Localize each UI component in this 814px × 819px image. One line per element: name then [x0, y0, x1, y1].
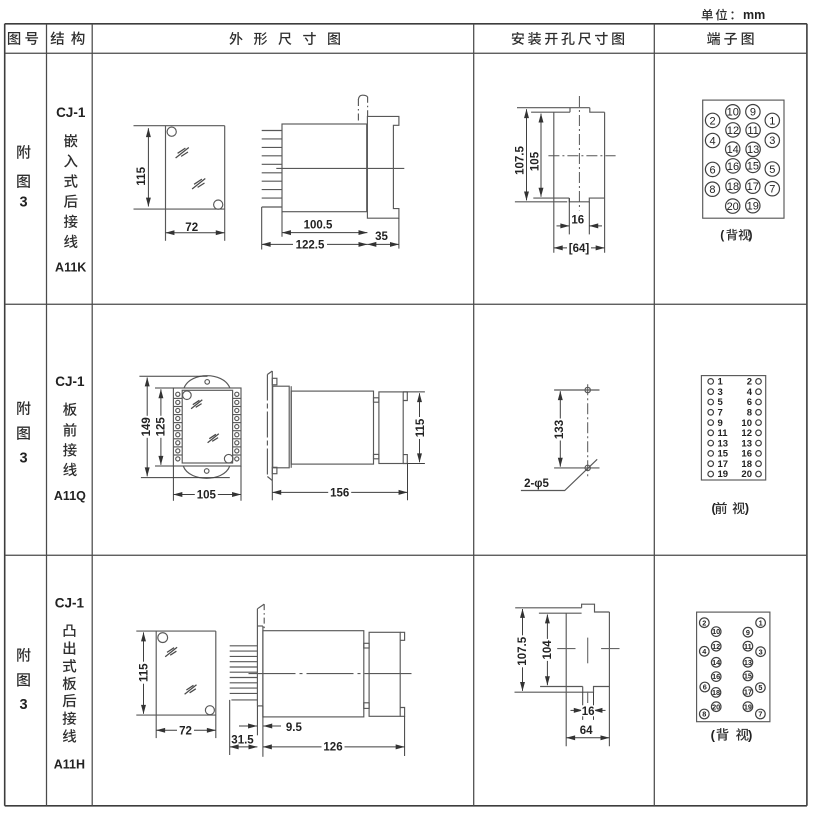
svg-text:A11K: A11K	[55, 260, 86, 274]
svg-text:mm: mm	[743, 8, 765, 22]
svg-text:100.5: 100.5	[304, 219, 333, 231]
svg-text:7: 7	[758, 710, 762, 719]
svg-text:16: 16	[712, 672, 720, 681]
svg-text:): )	[745, 502, 749, 516]
svg-text:18: 18	[727, 181, 739, 193]
svg-text:10: 10	[712, 627, 720, 636]
svg-text:14: 14	[727, 144, 739, 156]
svg-text:19: 19	[718, 469, 729, 480]
svg-text:20: 20	[727, 201, 739, 213]
svg-text:9: 9	[746, 628, 750, 637]
svg-text:105: 105	[197, 490, 217, 502]
svg-text:(: (	[711, 727, 716, 742]
svg-text:115: 115	[415, 418, 427, 437]
svg-text:15: 15	[747, 160, 759, 172]
svg-text:[64]: [64]	[569, 243, 590, 255]
svg-text:149: 149	[141, 417, 153, 436]
svg-text:6: 6	[703, 683, 707, 692]
svg-text:A11H: A11H	[54, 757, 85, 771]
svg-text:72: 72	[179, 725, 192, 737]
svg-text:11: 11	[744, 642, 752, 651]
svg-text:125: 125	[155, 417, 167, 437]
svg-text:31.5: 31.5	[231, 734, 254, 746]
svg-text:9: 9	[750, 107, 756, 119]
svg-text:17: 17	[747, 181, 759, 193]
svg-text:20: 20	[712, 702, 720, 711]
svg-text:): )	[748, 727, 752, 742]
svg-text:CJ-1: CJ-1	[56, 105, 86, 120]
svg-text:(: (	[720, 228, 724, 242]
svg-text:115: 115	[136, 166, 148, 185]
svg-text:CJ-1: CJ-1	[55, 596, 85, 611]
svg-text:13: 13	[747, 144, 759, 156]
svg-text:104: 104	[542, 640, 554, 660]
svg-text:16: 16	[571, 215, 584, 227]
svg-text:2-φ5: 2-φ5	[524, 478, 549, 490]
svg-text:2: 2	[702, 618, 706, 627]
svg-text:): )	[749, 228, 753, 242]
svg-text:17: 17	[744, 687, 752, 696]
svg-text:2: 2	[710, 115, 716, 127]
svg-text:11: 11	[747, 125, 758, 137]
svg-text:122.5: 122.5	[296, 239, 325, 251]
svg-text:3: 3	[19, 195, 27, 211]
svg-text:16: 16	[582, 706, 595, 718]
svg-text:14: 14	[712, 658, 721, 667]
svg-text:5: 5	[758, 683, 762, 692]
svg-text:18: 18	[712, 688, 720, 697]
svg-text:9.5: 9.5	[286, 722, 303, 734]
svg-text:16: 16	[727, 161, 739, 173]
svg-text:13: 13	[744, 658, 752, 667]
svg-text:12: 12	[712, 642, 720, 651]
svg-text:3: 3	[19, 450, 27, 466]
svg-text:107.5: 107.5	[514, 146, 526, 175]
svg-text:4: 4	[710, 135, 716, 147]
svg-text:115: 115	[139, 663, 151, 682]
svg-text:105: 105	[529, 151, 541, 171]
svg-text:35: 35	[375, 231, 388, 243]
svg-text:15: 15	[744, 672, 752, 681]
svg-text:20: 20	[741, 469, 752, 480]
svg-text:7: 7	[769, 184, 775, 196]
svg-text:3: 3	[19, 697, 27, 713]
svg-text:8: 8	[709, 184, 715, 196]
svg-text:64: 64	[580, 725, 593, 737]
svg-text:126: 126	[323, 742, 342, 754]
svg-text:19: 19	[747, 201, 759, 213]
svg-text:A11Q: A11Q	[54, 489, 86, 503]
svg-text:3: 3	[769, 135, 775, 147]
svg-text:19: 19	[744, 702, 752, 711]
svg-text:4: 4	[702, 647, 707, 656]
svg-text:8: 8	[702, 710, 706, 719]
svg-text:(: (	[712, 502, 717, 516]
svg-text:107.5: 107.5	[517, 636, 529, 665]
svg-text:133: 133	[554, 420, 566, 439]
svg-text:10: 10	[727, 107, 739, 119]
svg-text:72: 72	[185, 222, 198, 234]
svg-text:1: 1	[759, 618, 763, 627]
svg-text:3: 3	[759, 647, 763, 656]
svg-text:1: 1	[769, 115, 775, 127]
svg-text:5: 5	[769, 164, 775, 176]
svg-text:12: 12	[727, 125, 739, 137]
svg-text:156: 156	[330, 487, 349, 499]
svg-text:6: 6	[710, 164, 716, 176]
svg-text:CJ-1: CJ-1	[55, 374, 85, 389]
